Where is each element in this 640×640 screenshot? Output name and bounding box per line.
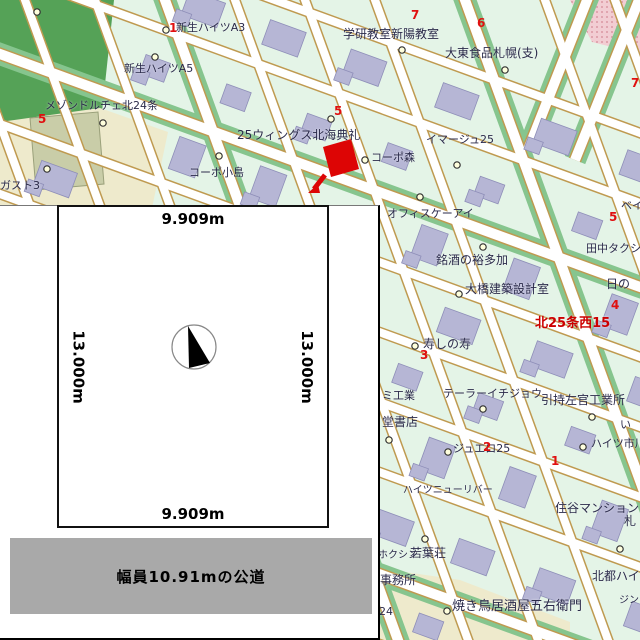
map-label: ジュエロ25 [453, 443, 510, 455]
map-label: コーポ森 [371, 152, 415, 164]
map-label: 焼き鳥居酒屋五右衛門 [452, 600, 582, 614]
map-label: ホクシン [378, 551, 418, 562]
map-label: 大橋建築設計室 [465, 283, 549, 296]
map-label: 25ウィングス北海典礼 [237, 129, 360, 142]
plot-outline: 9.909m 9.909m 13.000m 13.000m [57, 205, 329, 528]
map-label: オフィスケーアイ [387, 208, 474, 220]
map-label: 新生ハイツA5 [124, 63, 193, 75]
map-label: 24 [379, 606, 393, 618]
map-label: ハイツ市川 [591, 438, 640, 450]
block-number-label: 2 [483, 441, 491, 453]
map-label: ガスト3 [0, 180, 40, 192]
map-label: 事務所 [380, 574, 416, 587]
map-label: 学研教室新陽教室 [343, 28, 439, 41]
map-label: い [620, 419, 631, 431]
block-number-label: 7 [631, 77, 639, 89]
block-number-label: 7 [411, 9, 419, 21]
map-label: ミ工業 [382, 390, 415, 402]
compass-icon [166, 319, 222, 375]
map-label: メゾンドルチェ北24条 [45, 100, 158, 112]
map-label: ベイ [621, 200, 640, 212]
plot-diagram-panel: 9.909m 9.909m 13.000m 13.000m 幅員10.91mの公… [0, 205, 380, 640]
map-label: 銘酒の裕多加 [436, 254, 508, 267]
map-label: 住谷マンション [555, 502, 639, 515]
block-number-label: 1 [169, 22, 177, 34]
map-label: 北25条西15 [535, 317, 610, 331]
map-label: 北都ハイ [592, 570, 640, 583]
plot-dimension-left: 13.000m [70, 330, 88, 404]
road-width-bar: 幅員10.91mの公道 [10, 538, 372, 614]
block-number-label: 5 [334, 105, 342, 117]
map-screenshot: 新生ハイツA3新生ハイツA5メゾンドルチェ北24条ガスト3学研教室新陽教室大東食… [0, 0, 640, 640]
map-label: 日の [606, 278, 630, 291]
map-label: 大東食品札幌(支) [445, 47, 538, 60]
map-label: ジンコ [619, 596, 640, 607]
plot-dimension-bottom: 9.909m [161, 505, 224, 523]
map-label: コーポ小島 [189, 167, 244, 179]
map-label: 寿しの寿 [423, 338, 471, 351]
block-number-label: 4 [611, 299, 619, 311]
road-width-label: 幅員10.91mの公道 [116, 566, 265, 587]
map-label: テーラーイチジョウ [443, 388, 542, 400]
map-label: 引持左官工業所 [541, 394, 625, 407]
map-label: 堂書店 [382, 416, 418, 429]
block-number-label: 5 [38, 113, 46, 125]
block-number-label: 5 [609, 211, 617, 223]
block-number-label: 3 [420, 349, 428, 361]
map-label: 新生ハイツA3 [176, 22, 245, 34]
map-label: イマージュ25 [426, 134, 494, 146]
map-label: ハイツニューリバー [403, 486, 493, 497]
map-label: 札 [624, 515, 636, 528]
block-number-label: 6 [477, 17, 485, 29]
plot-dimension-top: 9.909m [161, 210, 224, 228]
block-number-label: 1 [551, 455, 559, 467]
map-label: 田中タクシ [586, 243, 640, 255]
plot-dimension-right: 13.000m [298, 330, 316, 404]
